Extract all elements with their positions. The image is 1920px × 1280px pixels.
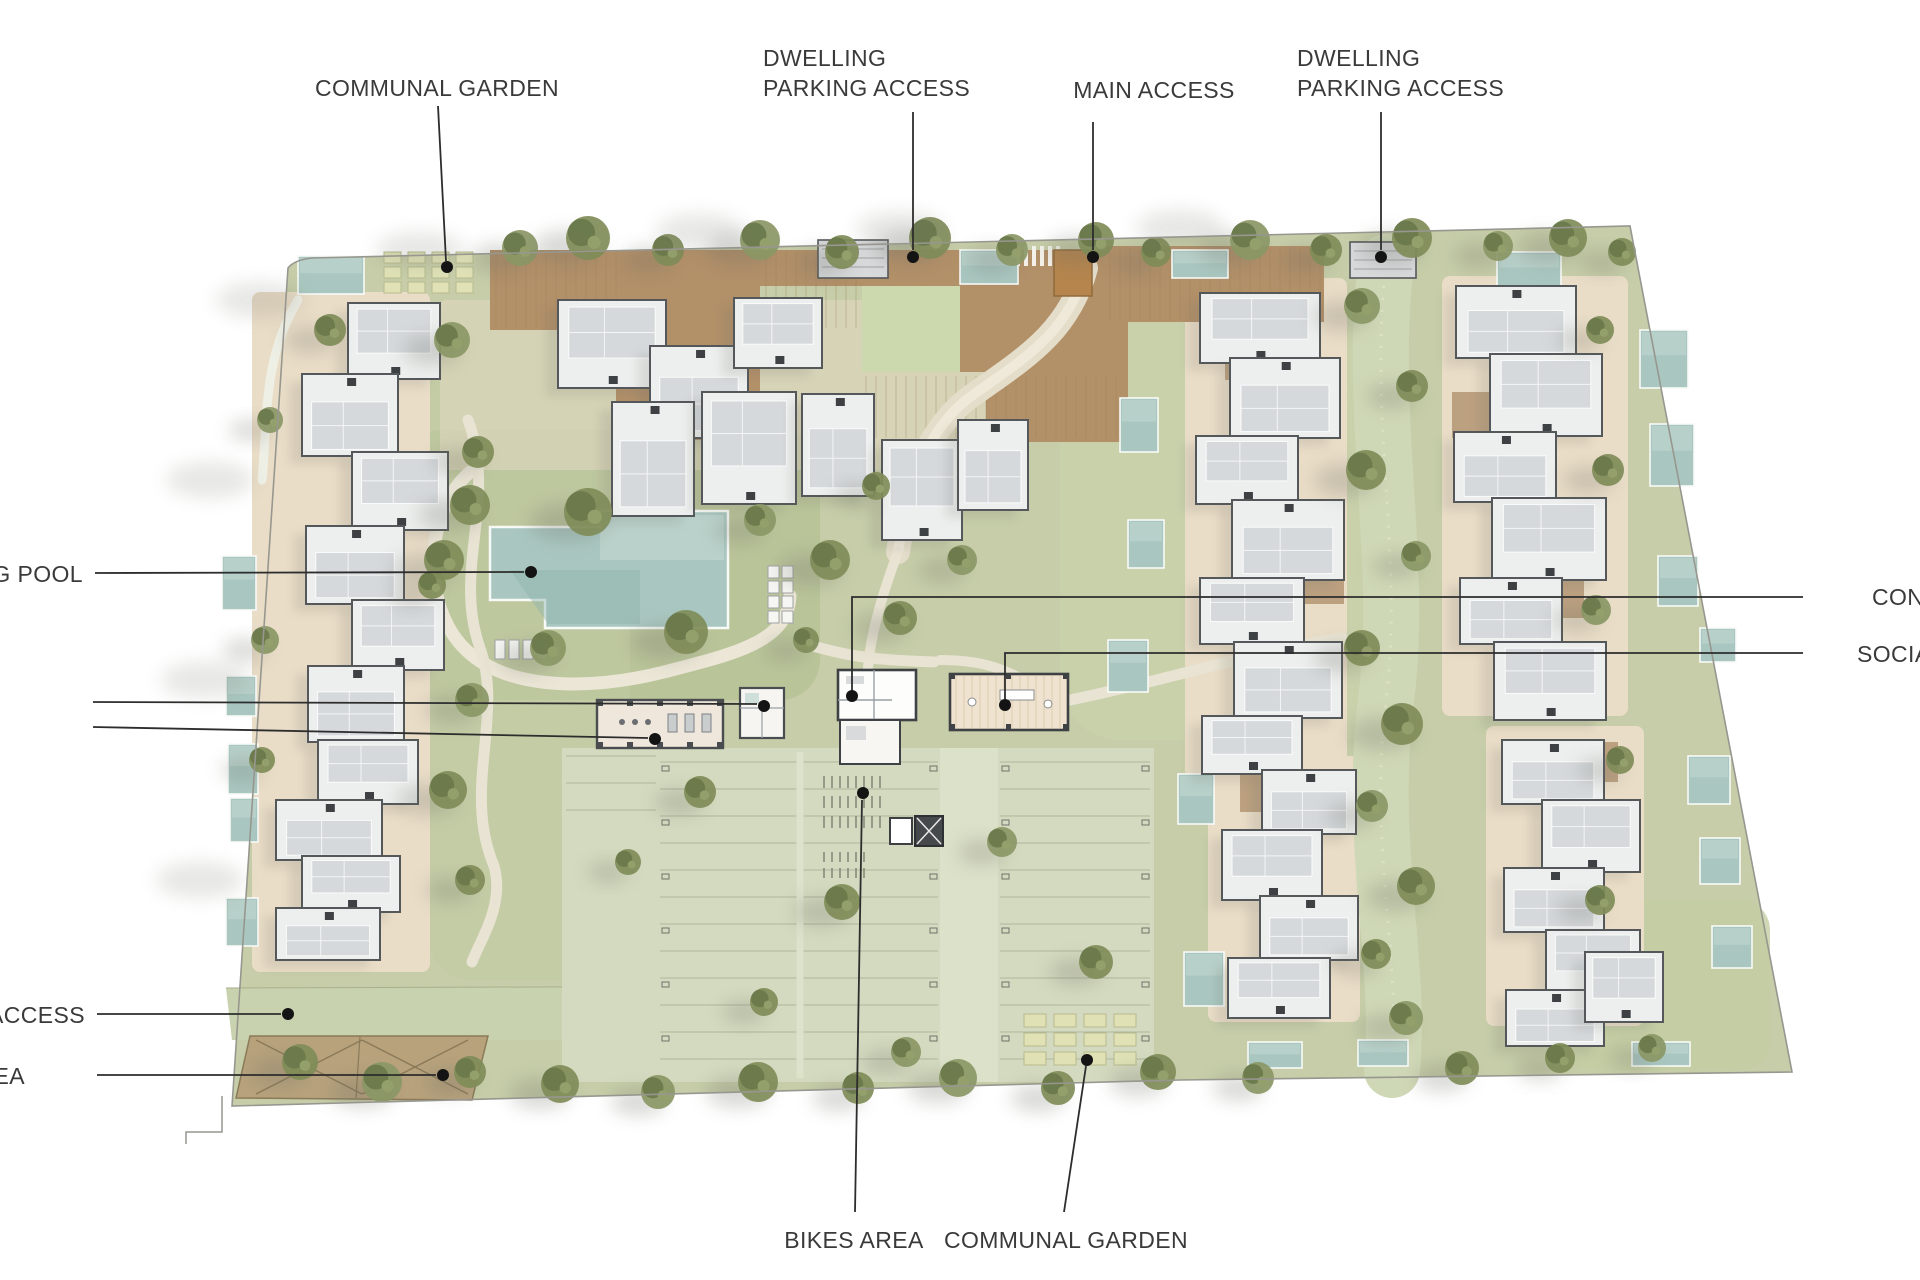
label-communal-garden-bottom-leader (1064, 1066, 1086, 1212)
label-access-dot (282, 1008, 294, 1020)
label-swimming-pool: NG POOL (0, 561, 83, 587)
label-bikes-area: BIKES AREA (784, 1227, 924, 1253)
label-concierge-dot (846, 690, 858, 702)
label-area: EA (0, 1063, 25, 1089)
label-dwelling-parking-access-right: DWELLING (1297, 45, 1420, 71)
label-area-dot (437, 1069, 449, 1081)
label-social-club-dot (999, 699, 1011, 711)
leader-amenity-lower-dot (649, 733, 661, 745)
label-dwelling-parking-access-left: DWELLING (763, 45, 886, 71)
leader-amenity-upper-leader (93, 702, 757, 704)
label-bikes-area-leader (855, 800, 862, 1212)
label-dwelling-parking-access-right: PARKING ACCESS (1297, 75, 1504, 101)
site-plan-page: COMMUNAL GARDENDWELLINGPARKING ACCESSMAI… (0, 0, 1920, 1280)
label-access: ACCESS (0, 1002, 85, 1028)
label-dwelling-parking-access-right-dot (1375, 251, 1387, 263)
label-main-access: MAIN ACCESS (1073, 77, 1235, 103)
label-swimming-pool-dot (525, 566, 537, 578)
leader-amenity-lower-leader (93, 727, 648, 738)
label-social-club: SOCIA (1857, 641, 1920, 667)
label-dwelling-parking-access-left: PARKING ACCESS (763, 75, 970, 101)
leader-amenity-upper-dot (758, 700, 770, 712)
label-social-club-leader (1005, 653, 1803, 699)
annotation-layer: COMMUNAL GARDENDWELLINGPARKING ACCESSMAI… (0, 0, 1920, 1280)
label-communal-garden-top-leader (438, 106, 446, 261)
label-main-access-dot (1087, 251, 1099, 263)
label-communal-garden-top-dot (441, 261, 453, 273)
label-concierge: CON (1872, 584, 1920, 610)
label-communal-garden-bottom: COMMUNAL GARDEN (944, 1227, 1188, 1253)
label-swimming-pool-leader (95, 572, 524, 573)
label-concierge-leader (852, 597, 1803, 690)
label-bikes-area-dot (857, 787, 869, 799)
label-dwelling-parking-access-left-dot (907, 251, 919, 263)
label-communal-garden-top: COMMUNAL GARDEN (315, 75, 559, 101)
label-communal-garden-bottom-dot (1081, 1054, 1093, 1066)
